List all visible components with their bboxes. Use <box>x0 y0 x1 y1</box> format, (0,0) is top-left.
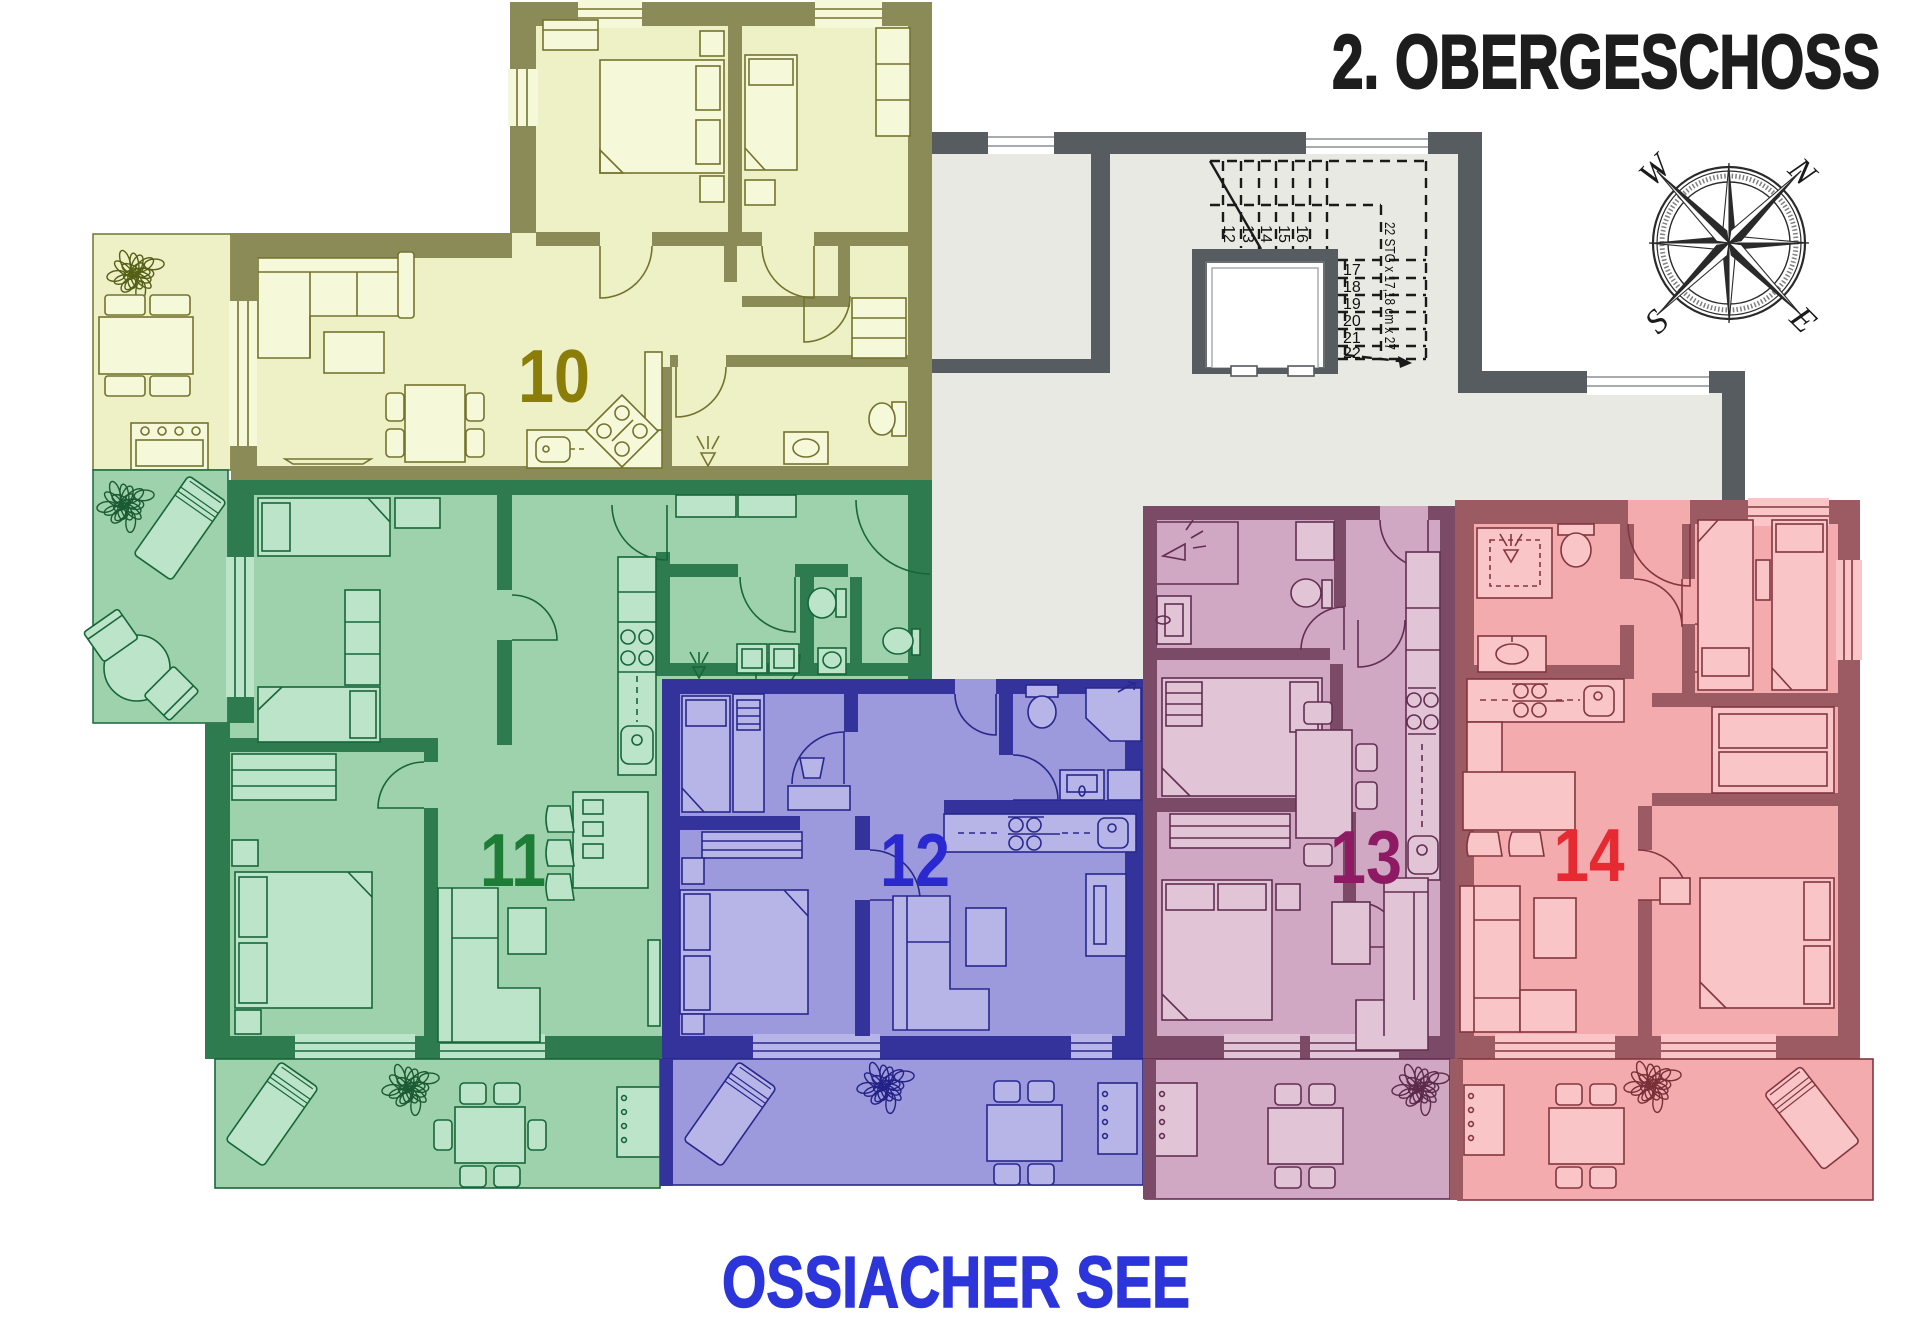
svg-text:14: 14 <box>1554 813 1625 897</box>
svg-text:13: 13 <box>1239 225 1256 243</box>
svg-text:16: 16 <box>1293 225 1310 243</box>
svg-text:17: 17 <box>1343 262 1361 279</box>
svg-text:12: 12 <box>880 818 950 902</box>
svg-text:18: 18 <box>1343 279 1361 296</box>
svg-text:OSSIACHER SEE: OSSIACHER SEE <box>722 1243 1190 1323</box>
svg-text:20: 20 <box>1343 313 1361 330</box>
svg-text:22 STG x 17,18 cm x 27: 22 STG x 17,18 cm x 27 <box>1381 222 1397 350</box>
svg-text:19: 19 <box>1343 296 1361 313</box>
svg-text:13: 13 <box>1330 815 1402 899</box>
svg-text:10: 10 <box>518 334 590 418</box>
svg-text:15: 15 <box>1275 225 1292 243</box>
svg-text:12: 12 <box>1220 225 1237 243</box>
svg-text:14: 14 <box>1257 225 1274 243</box>
svg-text:22: 22 <box>1343 345 1361 362</box>
svg-text:2. OBERGESCHOSS: 2. OBERGESCHOSS <box>1332 20 1880 105</box>
svg-text:11: 11 <box>480 818 546 902</box>
